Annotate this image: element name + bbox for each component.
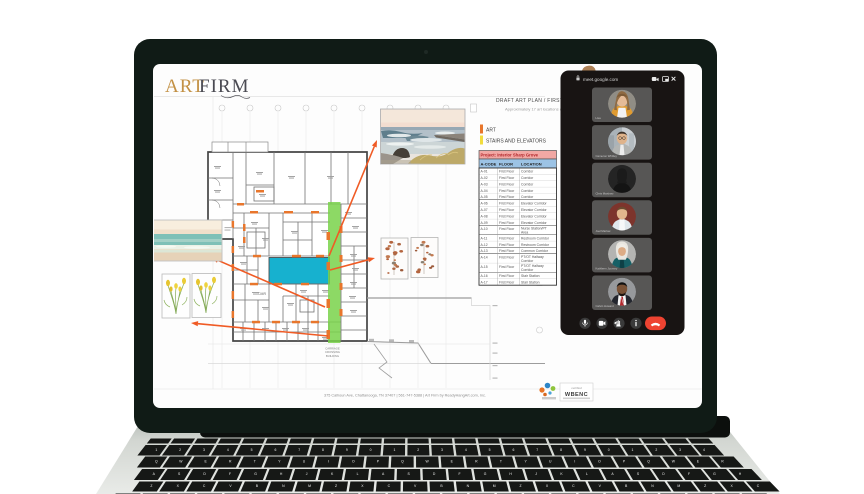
- svg-text:First Floor: First Floor: [499, 170, 515, 174]
- svg-text:Joel Marlow: Joel Marlow: [596, 229, 612, 233]
- svg-text:A-11: A-11: [481, 236, 488, 240]
- svg-text:5: 5: [251, 448, 253, 452]
- svg-text:FIRM: FIRM: [199, 76, 249, 97]
- svg-text:A-17: A-17: [481, 280, 488, 284]
- svg-text:Stair Station: Stair Station: [521, 274, 540, 278]
- svg-text:Calvin Howard: Calvin Howard: [596, 304, 615, 308]
- svg-text:L: L: [586, 472, 588, 476]
- svg-text:1: 1: [393, 448, 395, 452]
- svg-text:Corridor: Corridor: [521, 259, 534, 263]
- svg-text:Q: Q: [401, 460, 404, 464]
- svg-text:A-04: A-04: [481, 189, 488, 193]
- svg-text:4: 4: [227, 448, 229, 452]
- svg-text:Elevator Corridor: Elevator Corridor: [521, 221, 547, 225]
- svg-text:M: M: [308, 484, 311, 488]
- svg-text:0: 0: [608, 448, 610, 452]
- svg-text:Z: Z: [520, 484, 522, 488]
- svg-text:2: 2: [655, 448, 657, 452]
- svg-text:0: 0: [370, 448, 372, 452]
- svg-text:7: 7: [298, 448, 300, 452]
- svg-text:FLOOR: FLOOR: [499, 161, 513, 166]
- svg-text:Z: Z: [704, 484, 706, 488]
- svg-text:Kathleen Journey: Kathleen Journey: [596, 267, 618, 271]
- svg-text:G: G: [484, 472, 487, 476]
- svg-text:First Floor: First Floor: [499, 214, 515, 218]
- svg-text:WBENC: WBENC: [565, 392, 588, 398]
- svg-text:G: G: [254, 472, 257, 476]
- svg-text:9: 9: [346, 448, 348, 452]
- svg-text:Restroom Corridor: Restroom Corridor: [521, 243, 550, 247]
- svg-text:3: 3: [679, 448, 681, 452]
- svg-text:O: O: [352, 460, 355, 464]
- svg-text:First Floor: First Floor: [499, 265, 515, 269]
- svg-text:CMR: CMR: [258, 292, 266, 296]
- svg-text:STAIRS AND ELEVATORS: STAIRS AND ELEVATORS: [486, 139, 547, 145]
- svg-text:4: 4: [465, 448, 467, 452]
- svg-text:8: 8: [560, 448, 562, 452]
- svg-text:Cameron Whitley: Cameron Whitley: [596, 154, 618, 158]
- svg-text:A-10: A-10: [481, 227, 488, 231]
- svg-text:6: 6: [512, 448, 514, 452]
- svg-text:9: 9: [584, 448, 586, 452]
- svg-text:O: O: [598, 460, 601, 464]
- svg-text:meet.google.com: meet.google.com: [583, 77, 618, 82]
- svg-text:Corridor: Corridor: [521, 195, 534, 199]
- svg-text:Stair Station: Stair Station: [521, 280, 540, 284]
- svg-text:A-01: A-01: [481, 170, 488, 174]
- svg-text:A-16: A-16: [481, 274, 488, 278]
- svg-text:A-08: A-08: [481, 214, 488, 218]
- svg-text:2: 2: [179, 448, 181, 452]
- svg-text:G: G: [713, 472, 716, 476]
- svg-text:Corridor: Corridor: [521, 170, 534, 174]
- svg-text:First Floor: First Floor: [499, 227, 515, 231]
- svg-text:certified: certified: [571, 386, 582, 390]
- svg-text:BUILDING: BUILDING: [326, 354, 339, 358]
- svg-text:A-09: A-09: [481, 221, 488, 225]
- svg-text:First Floor: First Floor: [499, 236, 515, 240]
- svg-text:F: F: [229, 472, 231, 476]
- svg-text:375 Calhoun Ave, Chattanooga,: 375 Calhoun Ave, Chattanooga, TN 37407 |…: [324, 394, 486, 398]
- svg-text:ART: ART: [486, 128, 496, 134]
- svg-text:A-05: A-05: [481, 195, 488, 199]
- svg-text:A-13: A-13: [481, 249, 488, 253]
- svg-text:A-14: A-14: [481, 256, 488, 260]
- svg-text:6: 6: [274, 448, 276, 452]
- svg-text:A-07: A-07: [481, 208, 488, 212]
- svg-text:2: 2: [417, 448, 419, 452]
- svg-text:Area: Area: [521, 230, 528, 234]
- svg-text:J: J: [535, 472, 537, 476]
- svg-text:First Floor: First Floor: [499, 280, 515, 284]
- svg-text:First Floor: First Floor: [499, 202, 515, 206]
- svg-text:First Floor: First Floor: [499, 195, 515, 199]
- svg-text:First Floor: First Floor: [499, 176, 515, 180]
- svg-text:1: 1: [632, 448, 634, 452]
- svg-text:First Floor: First Floor: [499, 208, 515, 212]
- svg-text:A-02: A-02: [481, 176, 488, 180]
- svg-text:Elevator Corridor: Elevator Corridor: [521, 202, 547, 206]
- svg-text:Z: Z: [150, 484, 152, 488]
- svg-text:7: 7: [536, 448, 538, 452]
- svg-text:Lisa: Lisa: [596, 116, 602, 120]
- svg-text:4: 4: [703, 448, 705, 452]
- svg-text:First Floor: First Floor: [499, 189, 515, 193]
- svg-text:First Floor: First Floor: [499, 274, 515, 278]
- svg-text:Q: Q: [647, 460, 650, 464]
- svg-text:Common Corridor: Common Corridor: [521, 249, 549, 253]
- svg-text:8: 8: [322, 448, 324, 452]
- svg-text:Z: Z: [335, 484, 337, 488]
- svg-text:LOCATION: LOCATION: [521, 161, 542, 166]
- svg-text:3: 3: [441, 448, 443, 452]
- svg-text:T: T: [254, 460, 256, 464]
- svg-text:I: I: [328, 460, 329, 464]
- svg-text:First Floor: First Floor: [499, 221, 515, 225]
- svg-text:Elevator Corridor: Elevator Corridor: [521, 214, 547, 218]
- svg-text:M: M: [677, 484, 680, 488]
- svg-text:A-CODE: A-CODE: [481, 161, 497, 166]
- svg-text:Corridor: Corridor: [521, 268, 534, 272]
- svg-text:A-12: A-12: [481, 243, 488, 247]
- svg-text:M: M: [493, 484, 496, 488]
- svg-text:Chris Martinez: Chris Martinez: [596, 191, 615, 195]
- svg-text:First Floor: First Floor: [499, 256, 515, 260]
- svg-text:1: 1: [155, 448, 157, 452]
- svg-text:First Floor: First Floor: [499, 243, 515, 247]
- svg-text:Corridor: Corridor: [521, 176, 534, 180]
- svg-text:3: 3: [203, 448, 205, 452]
- svg-text:A-03: A-03: [481, 182, 488, 186]
- svg-text:First Floor: First Floor: [499, 182, 515, 186]
- svg-text:Corridor: Corridor: [521, 182, 534, 186]
- svg-text:First Floor: First Floor: [499, 249, 515, 253]
- svg-text:L: L: [357, 472, 359, 476]
- svg-text:Restroom Corridor: Restroom Corridor: [521, 236, 550, 240]
- svg-text:F: F: [459, 472, 461, 476]
- svg-text:A-06: A-06: [481, 202, 488, 206]
- svg-text:F: F: [688, 472, 690, 476]
- svg-text:J: J: [306, 472, 308, 476]
- svg-text:Q: Q: [155, 460, 158, 464]
- svg-text:T: T: [500, 460, 502, 464]
- svg-text:Elevator Corridor: Elevator Corridor: [521, 208, 547, 212]
- svg-text:I: I: [574, 460, 575, 464]
- svg-text:Corridor: Corridor: [521, 189, 534, 193]
- svg-text:5: 5: [489, 448, 491, 452]
- svg-text:Project: Interior Sharp Grove: Project: Interior Sharp Grove: [481, 153, 539, 158]
- svg-text:A-15: A-15: [481, 265, 488, 269]
